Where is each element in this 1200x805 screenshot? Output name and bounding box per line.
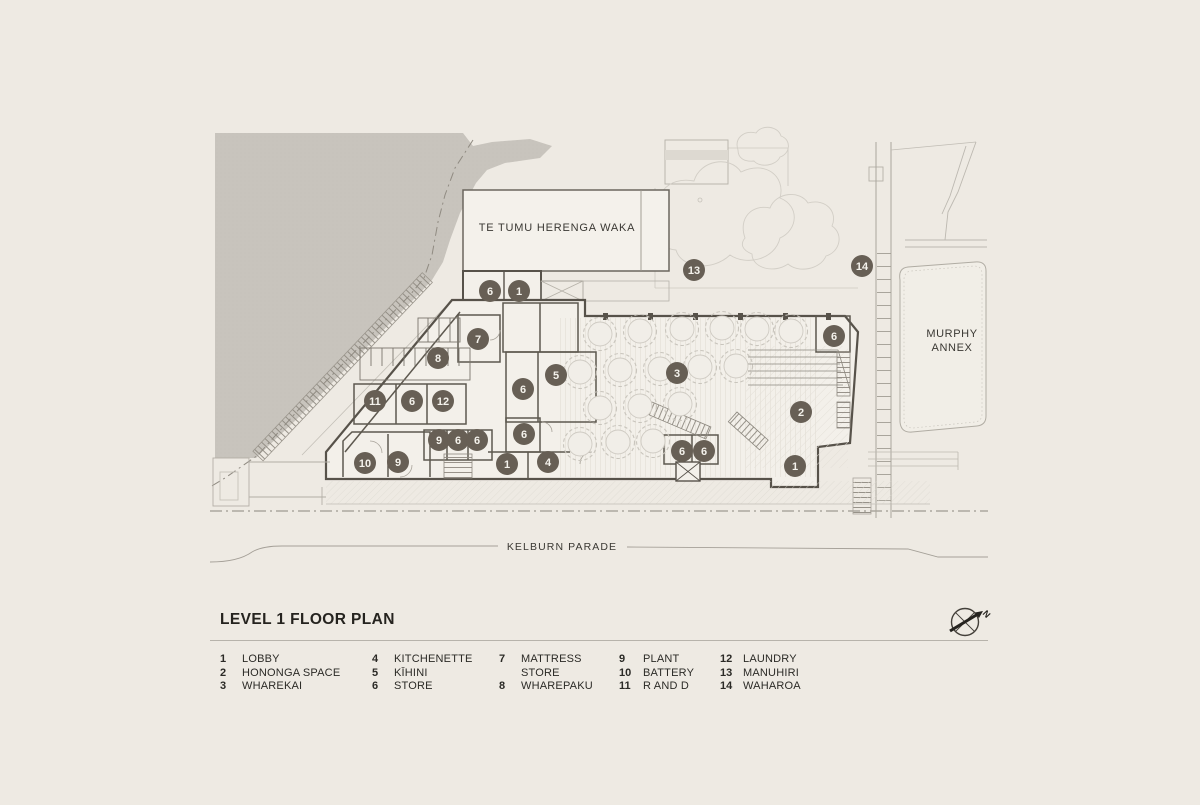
south-paving: [326, 481, 930, 504]
north-compass: N: [941, 598, 995, 646]
legend-item: 1 LOBBY: [220, 653, 354, 667]
svg-text:6: 6: [521, 429, 527, 441]
room-marker-4: 4: [537, 451, 559, 473]
murphy-annex-label-line1: MURPHY: [926, 328, 977, 340]
tree-outlines: [657, 127, 840, 269]
legend-item: 11 R AND D: [619, 680, 715, 694]
svg-text:6: 6: [520, 384, 526, 396]
legend-item: 4 KITCHENETTE: [372, 653, 486, 667]
street-label: KELBURN PARADE: [507, 541, 617, 553]
legend-item: 3 WHAREKAI: [220, 680, 354, 694]
room-marker-10: 10: [354, 452, 376, 474]
svg-text:4: 4: [545, 457, 552, 469]
room-marker-6: 6: [447, 429, 469, 451]
svg-text:1: 1: [504, 459, 510, 471]
room-marker-6: 6: [823, 325, 845, 347]
room-marker-9: 9: [387, 451, 409, 473]
legend-item: 7 MATTRESS STORE: [499, 653, 601, 680]
legend-column-2: 4 KITCHENETTE 5 KĪHINI 6 STORE: [372, 653, 486, 694]
legend-item: 12 LAUNDRY: [720, 653, 827, 667]
svg-text:6: 6: [455, 435, 461, 447]
room-marker-2: 2: [790, 401, 812, 423]
north-needle: [950, 614, 978, 631]
legend-item: 5 KĪHINI: [372, 667, 486, 681]
svg-text:6: 6: [474, 435, 480, 447]
svg-text:12: 12: [437, 396, 449, 408]
northeast-site-lines: [905, 142, 987, 247]
svg-text:3: 3: [674, 368, 680, 380]
north-label: N: [981, 608, 993, 620]
room-marker-6: 6: [466, 429, 488, 451]
west-site-structures: [213, 458, 330, 506]
legend-column-3: 7 MATTRESS STORE 8 WHAREPAKU: [499, 653, 601, 694]
room-marker-6: 6: [513, 423, 535, 445]
svg-text:6: 6: [679, 446, 685, 458]
legend-item: 9 PLANT: [619, 653, 715, 667]
svg-text:10: 10: [359, 458, 371, 470]
legend-item: 2 HONONGA SPACE: [220, 667, 354, 681]
legend-column-1: 1 LOBBY 2 HONONGA SPACE 3 WHAREKAI: [220, 653, 354, 694]
svg-text:7: 7: [475, 334, 481, 346]
svg-text:9: 9: [395, 457, 401, 469]
svg-text:8: 8: [435, 353, 441, 365]
svg-text:14: 14: [856, 261, 869, 273]
svg-text:6: 6: [409, 396, 415, 408]
page-title: LEVEL 1 FLOOR PLAN: [220, 611, 1000, 629]
svg-text:6: 6: [487, 286, 493, 298]
room-marker-14: 14: [851, 255, 873, 277]
svg-text:9: 9: [436, 435, 442, 447]
murphy-annex-building: MURPHY ANNEX: [900, 262, 986, 432]
svg-text:1: 1: [516, 286, 522, 298]
room-marker-12: 12: [432, 390, 454, 412]
room-marker-1: 1: [784, 455, 806, 477]
room-marker-1: 1: [508, 280, 530, 302]
room-marker-6: 6: [512, 378, 534, 400]
svg-text:13: 13: [688, 265, 700, 277]
svg-text:11: 11: [369, 396, 381, 408]
svg-text:6: 6: [701, 446, 707, 458]
te-tumu-label: TE TUMU HERENGA WAKA: [479, 222, 636, 234]
room-marker-11: 11: [364, 390, 386, 412]
room-marker-1: 1: [496, 453, 518, 475]
legend-item: 8 WHAREPAKU: [499, 680, 601, 694]
svg-text:5: 5: [553, 370, 559, 382]
roof-structure: [665, 140, 728, 202]
legend-item: 6 STORE: [372, 680, 486, 694]
legend-column-5: 12 LAUNDRY 13 MANUHIRI 14 WAHAROA: [720, 653, 827, 694]
legend-item: 10 BATTERY: [619, 667, 715, 681]
room-marker-6: 6: [401, 390, 423, 412]
room-marker-6: 6: [479, 280, 501, 302]
legend-column-4: 9 PLANT 10 BATTERY 11 R AND D: [619, 653, 715, 694]
legend-item: 14 WAHAROA: [720, 680, 827, 694]
svg-text:1: 1: [792, 461, 798, 473]
room-marker-8: 8: [427, 347, 449, 369]
murphy-annex-label-line2: ANNEX: [932, 342, 973, 354]
room-marker-6: 6: [693, 440, 715, 462]
floor-plan-page: MURPHY ANNEX TE TUMU HERENGA WAKA: [0, 0, 1200, 800]
room-marker-7: 7: [467, 328, 489, 350]
elevator: [676, 462, 700, 481]
room-marker-9: 9: [428, 429, 450, 451]
room-marker-13: 13: [683, 259, 705, 281]
room-marker-3: 3: [666, 362, 688, 384]
room-marker-5: 5: [545, 364, 567, 386]
svg-text:2: 2: [798, 407, 804, 419]
title-divider: [210, 640, 988, 641]
legend-item: 13 MANUHIRI: [720, 667, 827, 681]
svg-text:6: 6: [831, 331, 837, 343]
room-marker-6: 6: [671, 440, 693, 462]
